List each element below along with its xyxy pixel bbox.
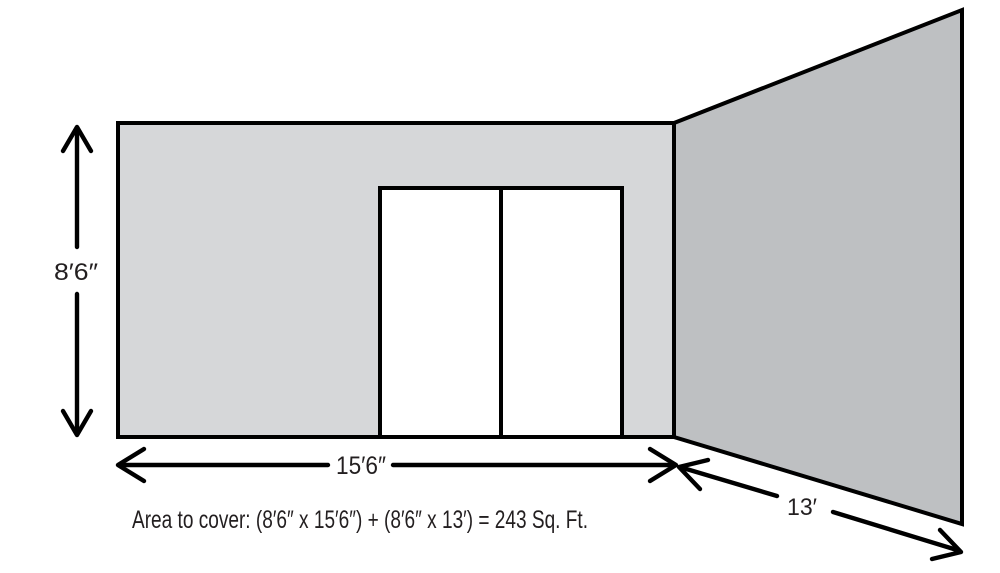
area-formula: Area to cover: (8′6″ x 15′6″) + (8′6″ x … — [132, 506, 588, 534]
height-label: 8′6″ — [54, 259, 99, 286]
wall-measurement-diagram: 8′6″ 15′6″ 13′ Area to cover: (8′6″ x 15… — [0, 0, 1000, 573]
width-label: 15′6″ — [336, 452, 386, 480]
double-door-group — [380, 188, 622, 437]
depth-label: 13′ — [787, 494, 817, 521]
